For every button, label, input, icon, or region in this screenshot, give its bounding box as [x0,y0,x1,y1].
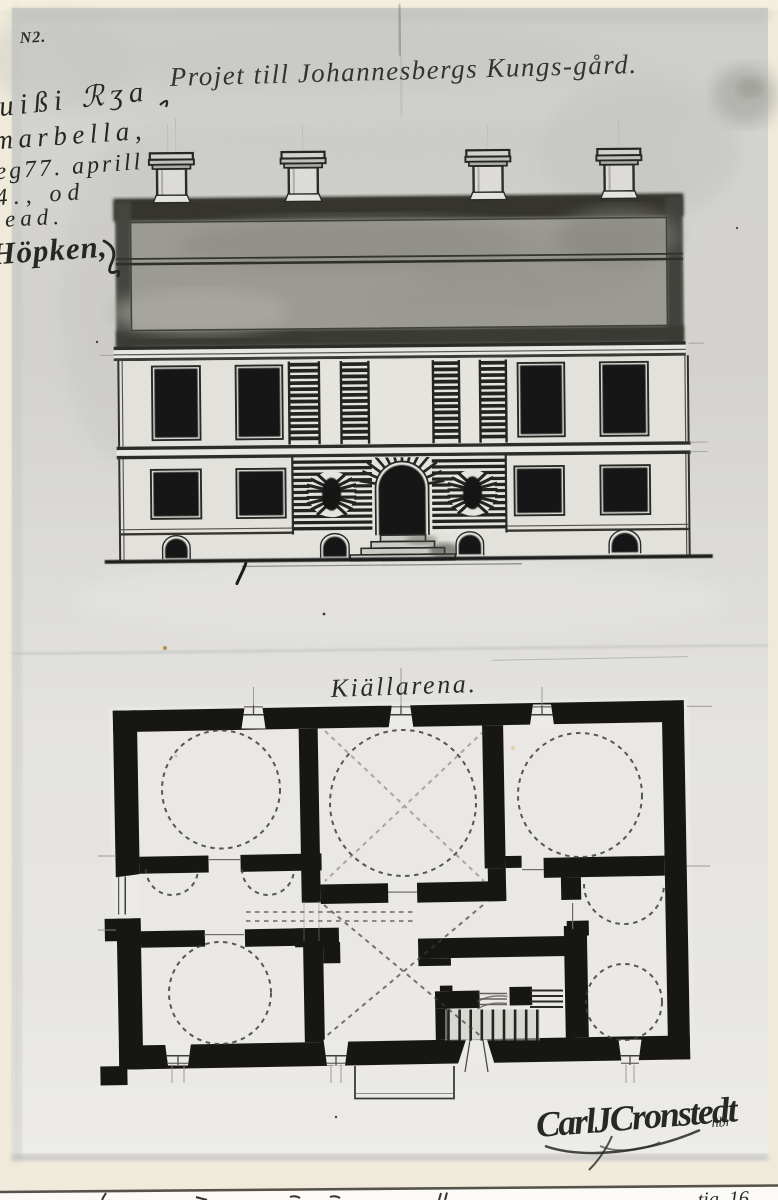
svg-text:lead.: lead. [0,204,65,233]
svg-text:nbr: nbr [711,1115,732,1131]
svg-text:Kiällarena.: Kiällarena. [329,669,478,703]
svg-text:tig. 16: tig. 16 [697,1187,749,1200]
svg-text:N2.: N2. [18,29,46,47]
